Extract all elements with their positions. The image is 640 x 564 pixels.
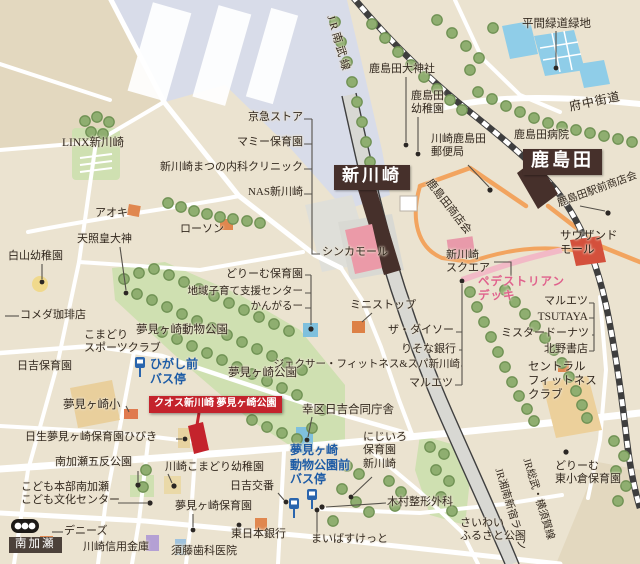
tree-icon — [157, 327, 167, 337]
tree-icon — [342, 461, 352, 471]
tree-icon — [599, 131, 609, 141]
tree-icon — [621, 481, 631, 491]
tree-icon — [465, 287, 475, 297]
tree-icon — [500, 362, 510, 372]
tree-icon — [354, 469, 364, 479]
tree-icon — [179, 277, 189, 287]
tree-icon — [479, 317, 489, 327]
tree-icon — [284, 326, 294, 336]
tree-icon — [447, 506, 457, 516]
tree-icon — [577, 400, 587, 410]
tree-icon — [147, 295, 157, 305]
tree-icon — [540, 333, 550, 343]
tree-icon — [239, 305, 249, 315]
tree-icon — [514, 391, 524, 401]
tree-icon — [530, 321, 540, 331]
tree-icon — [396, 487, 406, 497]
tree-icon — [242, 216, 252, 226]
tree-icon — [209, 291, 219, 301]
tree-icon — [269, 319, 279, 329]
tree-icon — [439, 449, 449, 459]
tree-icon — [92, 112, 102, 122]
tree-icon — [445, 95, 455, 105]
tree-icon — [557, 358, 567, 368]
tree-icon — [86, 127, 96, 137]
tree-icon — [611, 466, 621, 476]
tree-icon — [557, 122, 567, 132]
tree-icon — [474, 53, 484, 63]
tree-icon — [292, 434, 302, 444]
tree-icon — [487, 94, 497, 104]
tree-icon — [277, 383, 287, 393]
tree-icon — [347, 77, 357, 87]
tree-icon — [254, 312, 264, 322]
tree-icon — [627, 137, 637, 147]
tree-icon — [364, 507, 374, 517]
tree-icon — [172, 334, 182, 344]
tree-icon — [222, 330, 232, 340]
tree-icon — [564, 372, 574, 382]
tree-icon — [192, 316, 202, 326]
tree-icon — [436, 492, 446, 502]
tree-icon — [613, 496, 623, 506]
tree-icon — [104, 117, 114, 127]
tree-icon — [361, 137, 371, 147]
tree-icon — [255, 218, 265, 228]
tree-icon — [447, 28, 457, 38]
tree-icon — [307, 423, 317, 433]
tree-icon — [164, 270, 174, 280]
tree-icon — [80, 116, 90, 126]
tree-icon — [187, 341, 197, 351]
map-canvas — [0, 0, 640, 564]
tree-icon — [529, 416, 539, 426]
tree-icon — [342, 57, 352, 67]
tree-icon — [406, 60, 416, 70]
tree-icon — [215, 212, 225, 222]
tree-icon — [163, 198, 173, 208]
tree-icon — [177, 309, 187, 319]
tree-icon — [132, 289, 142, 299]
tree-icon — [317, 405, 327, 415]
tree-icon — [252, 344, 262, 354]
tree-icon — [522, 404, 532, 414]
tree-icon — [520, 309, 530, 319]
tree-icon — [228, 214, 238, 224]
tree-icon — [486, 332, 496, 342]
tree-icon — [543, 118, 553, 128]
tree-icon — [282, 358, 292, 368]
tree-icon — [365, 157, 375, 167]
tree-icon — [367, 19, 377, 29]
tree-icon — [507, 377, 517, 387]
tree-icon — [162, 302, 172, 312]
tree-icon — [432, 84, 442, 94]
crossing-roundel-icon — [11, 519, 39, 533]
tree-icon — [202, 209, 212, 219]
tree-icon — [98, 129, 108, 139]
tree-icon — [297, 365, 307, 375]
tree-icon — [582, 413, 592, 423]
tree-icon — [500, 285, 510, 295]
tree-icon — [444, 476, 454, 486]
tree-icon — [432, 15, 442, 25]
tree-icon — [457, 105, 467, 115]
tree-icon — [134, 268, 144, 278]
tree-icon — [292, 390, 302, 400]
tree-icon — [194, 284, 204, 294]
tree-icon — [262, 422, 272, 432]
tree-icon — [501, 101, 511, 111]
tree-icon — [330, 17, 340, 27]
tree-icon — [380, 33, 390, 43]
tree-icon — [465, 65, 475, 75]
tree-icon — [390, 501, 400, 511]
tree-icon — [207, 323, 217, 333]
tree-icon — [431, 465, 441, 475]
area-map: JR南武線平間緑道緑地鹿島田大神社鹿島田 幼稚園府中街道鹿島田病院川崎鹿島田 郵… — [0, 0, 640, 564]
tree-icon — [549, 345, 559, 355]
tree-icon — [529, 113, 539, 123]
tree-icon — [419, 72, 429, 82]
tree-icon — [202, 348, 212, 358]
tree-icon — [357, 117, 367, 127]
tree-icon — [217, 355, 227, 365]
tree-icon — [384, 476, 394, 486]
tree-icon — [472, 302, 482, 312]
tree-icon — [224, 298, 234, 308]
tree-icon — [176, 202, 186, 212]
tree-icon — [149, 264, 159, 274]
tree-icon — [247, 369, 257, 379]
tree-icon — [328, 516, 338, 526]
tree-icon — [613, 134, 623, 144]
tree-icon — [585, 128, 595, 138]
tree-icon — [510, 297, 520, 307]
tree-icon — [571, 125, 581, 135]
tree-icon — [461, 41, 471, 51]
tree-icon — [425, 442, 435, 452]
tree-icon — [352, 97, 362, 107]
tree-icon — [247, 415, 257, 425]
tree-icon — [473, 87, 483, 97]
tree-icon — [515, 107, 525, 117]
tree-icon — [393, 47, 403, 57]
tree-icon — [493, 347, 503, 357]
tree-icon — [277, 428, 287, 438]
tree-icon — [609, 436, 619, 446]
tree-icon — [141, 465, 151, 475]
tree-icon — [488, 23, 498, 33]
tree-icon — [232, 362, 242, 372]
tree-icon — [267, 351, 277, 361]
tree-icon — [262, 376, 272, 386]
tree-icon — [619, 451, 629, 461]
tree-icon — [237, 337, 247, 347]
tree-icon — [337, 484, 347, 494]
tree-icon — [189, 206, 199, 216]
tree-icon — [571, 386, 581, 396]
tree-icon — [336, 37, 346, 47]
